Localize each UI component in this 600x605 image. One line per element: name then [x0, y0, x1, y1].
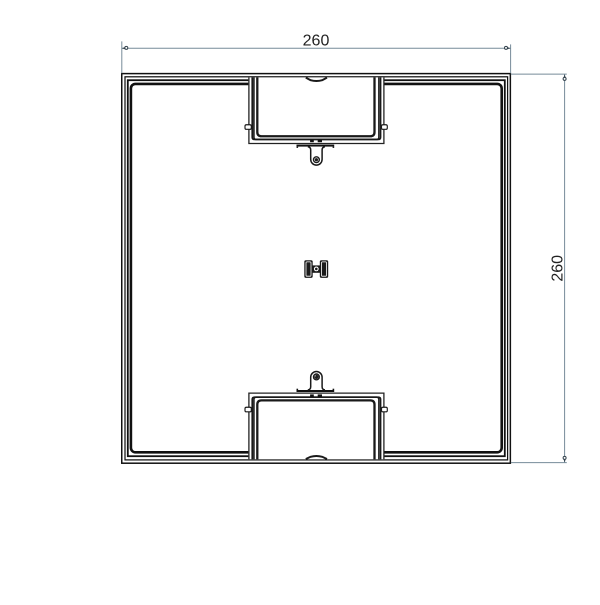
svg-text:260: 260: [303, 33, 330, 50]
svg-text:260: 260: [549, 255, 566, 282]
